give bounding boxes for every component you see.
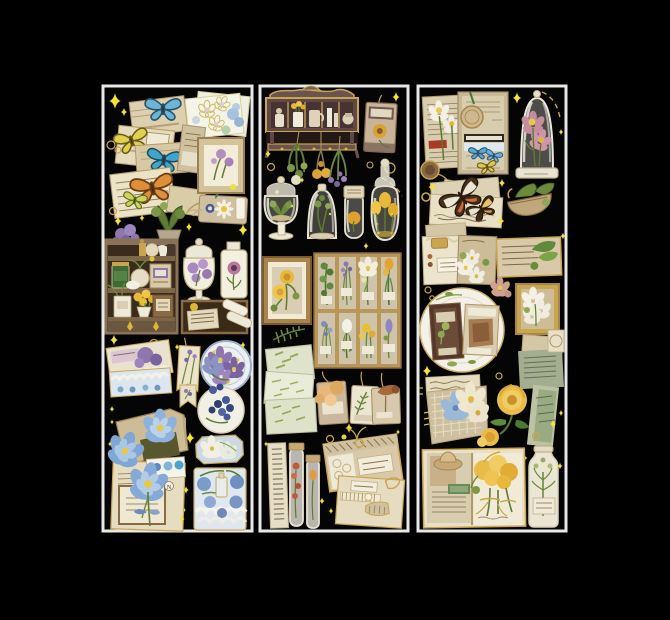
svg-text:N: N	[167, 485, 172, 491]
